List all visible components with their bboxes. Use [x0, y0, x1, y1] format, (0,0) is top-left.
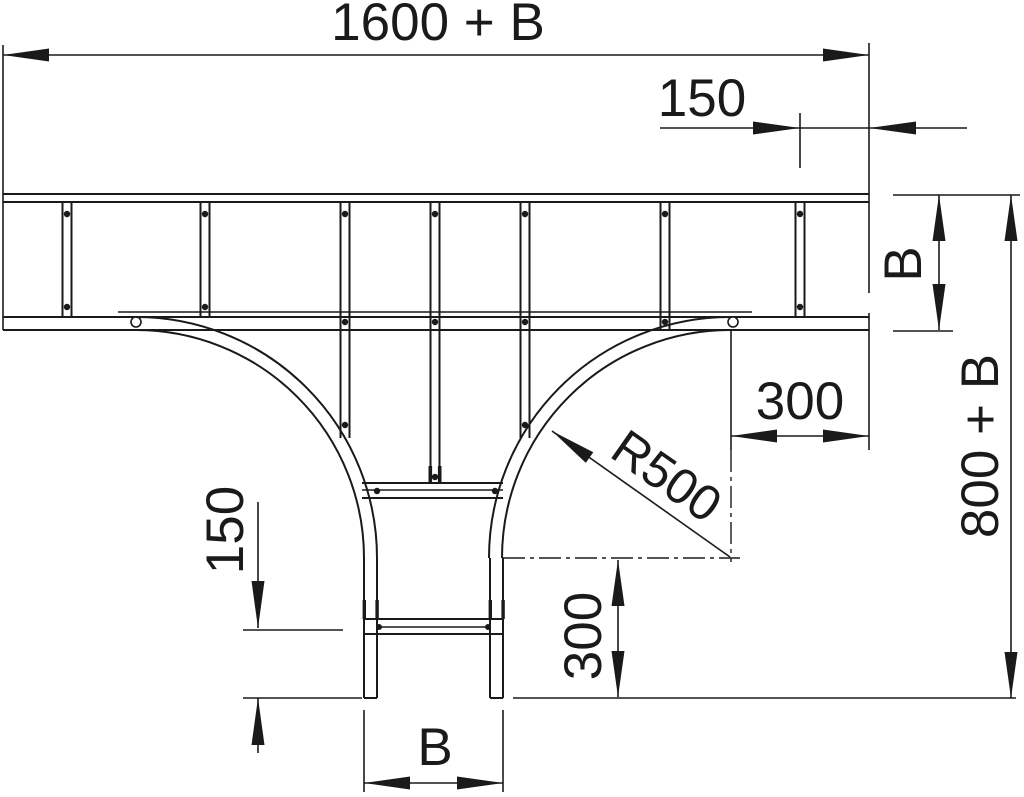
dim-bend-radius: R500	[552, 419, 732, 557]
rung	[661, 202, 670, 330]
dim-branch-width: B	[364, 710, 503, 792]
dim-branch-rung-to-end: 150	[196, 486, 362, 753]
dim-branch-width-label: B	[417, 718, 452, 777]
dim-bend-radius-label: R500	[602, 419, 732, 533]
dim-main-width: B	[874, 195, 1020, 331]
rung	[362, 483, 503, 498]
cable-ladder-t-piece-drawing: 1600 + B 150 B 800 + B 300 R500	[0, 0, 1024, 797]
dim-end-rung-offset: 150	[658, 69, 967, 168]
dim-overall-length-label: 1600 + B	[331, 0, 545, 52]
rung	[796, 202, 805, 317]
dim-overall-depth-label: 800 + B	[951, 354, 1010, 538]
dim-center-to-branch-end-label: 300	[554, 592, 613, 680]
rivet-dots	[64, 211, 803, 480]
rung	[63, 202, 72, 317]
dim-branch-rung-to-end-label: 150	[196, 486, 255, 574]
dim-main-width-label: B	[874, 246, 933, 281]
dim-overall-length: 1600 + B	[3, 0, 869, 450]
rung	[364, 619, 503, 634]
dim-corner-to-end-label: 300	[756, 372, 844, 431]
rung	[201, 202, 210, 317]
dim-end-rung-offset-label: 150	[658, 69, 746, 128]
dim-corner-to-end: 300	[731, 372, 869, 436]
rung	[431, 202, 440, 483]
branch-ladder	[362, 466, 505, 698]
technical-drawing-page: 1600 + B 150 B 800 + B 300 R500	[0, 0, 1024, 797]
dim-center-to-branch-end: 300	[554, 560, 618, 697]
